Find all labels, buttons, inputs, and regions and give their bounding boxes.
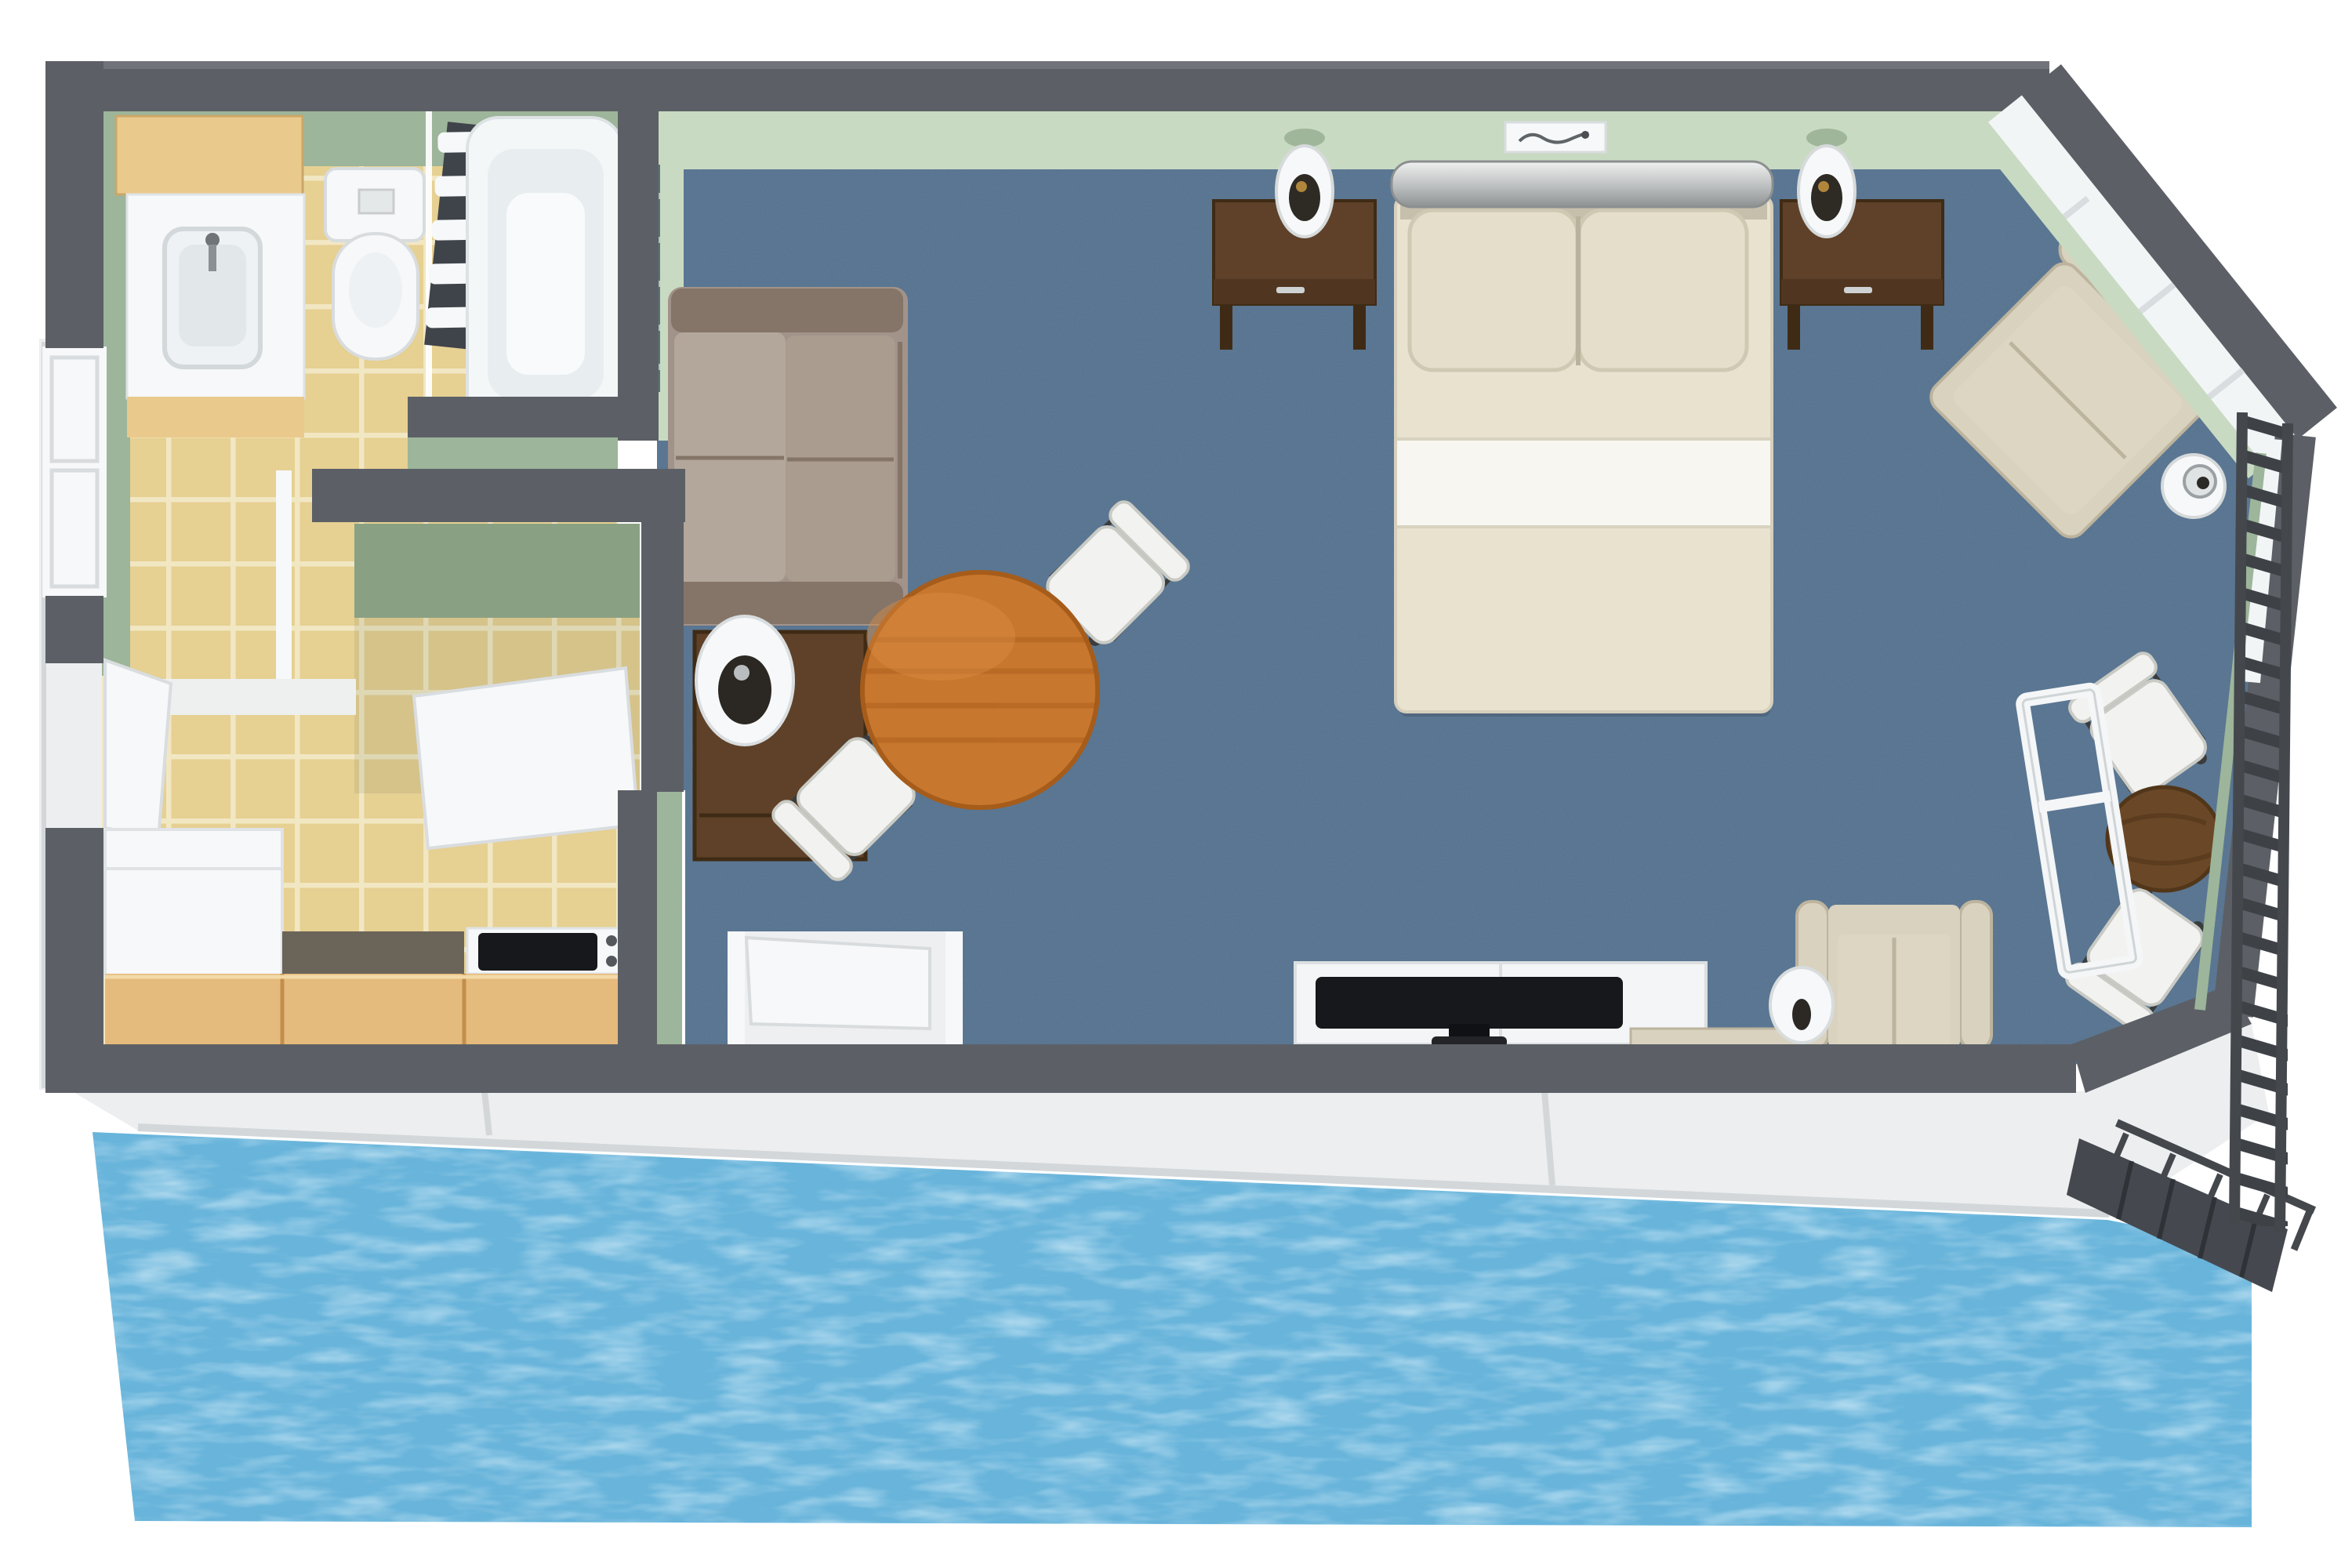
toilet xyxy=(325,169,424,359)
vase-lamp xyxy=(1770,967,1833,1043)
sofa-arm-top xyxy=(671,289,903,332)
counter-top xyxy=(282,931,464,974)
open-closet-door xyxy=(414,668,638,848)
bathtub xyxy=(467,118,622,426)
fridge-cabinet xyxy=(105,829,282,975)
walkway-ladder xyxy=(2234,411,2288,1232)
bedside-lamp-right xyxy=(1798,146,1855,237)
bed-sheet-fold xyxy=(1397,439,1770,527)
bedside-lamp-left xyxy=(1276,146,1333,237)
headboard xyxy=(1392,162,1773,207)
left-entry-door xyxy=(105,660,171,839)
flat-tv xyxy=(1316,977,1623,1029)
wall-picture xyxy=(1505,122,1606,152)
bottom-wall xyxy=(45,1044,2076,1093)
double-bed xyxy=(1392,162,1773,717)
divider-wall xyxy=(618,111,659,441)
kitchen-divider-wall xyxy=(618,790,657,1046)
floor-ball-lamp xyxy=(2162,455,2225,517)
pillow-right xyxy=(1579,210,1747,370)
left-wall-upper xyxy=(45,61,103,348)
floorplan-canvas xyxy=(0,0,2352,1568)
sofa xyxy=(668,287,908,626)
closet-wall-right xyxy=(641,469,684,792)
tub-alcove-wall xyxy=(408,397,619,437)
entry-recess xyxy=(728,931,963,1046)
cabinet-front xyxy=(105,974,633,1046)
vanity-sink xyxy=(116,116,304,437)
entry-door-open xyxy=(746,938,930,1029)
left-window xyxy=(42,347,107,597)
sofa-arm-bottom xyxy=(671,582,903,624)
left-wall-mid xyxy=(45,596,103,663)
closet-wall-top xyxy=(312,469,685,522)
pillow-left xyxy=(1410,210,1577,370)
